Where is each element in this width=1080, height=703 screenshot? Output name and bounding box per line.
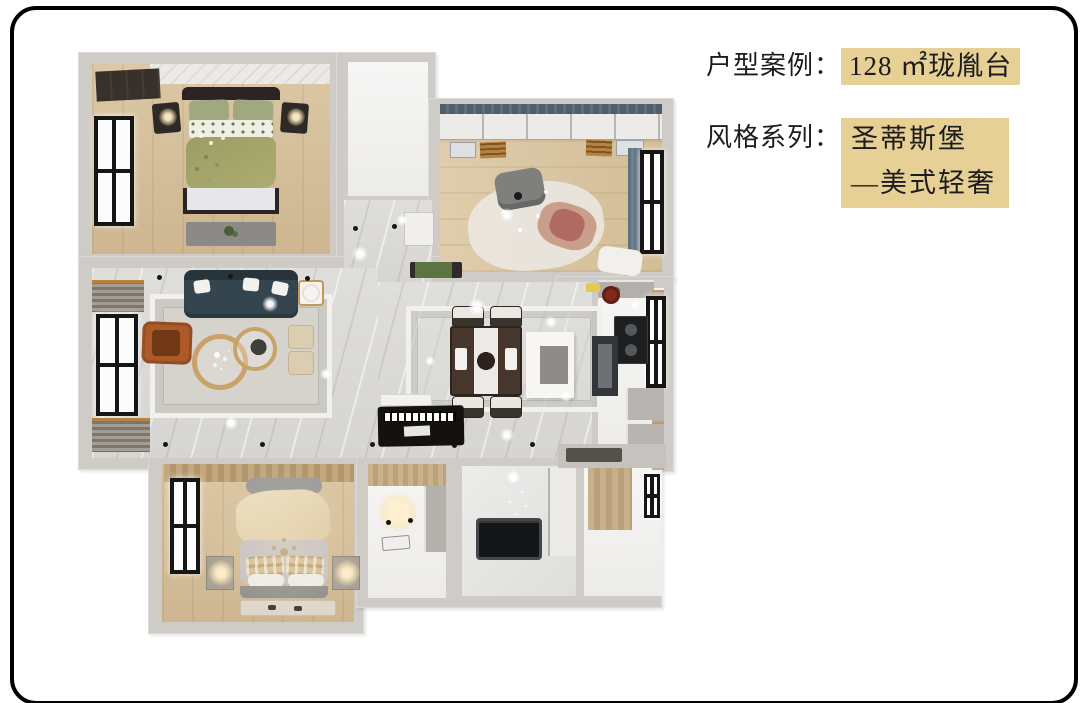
window-bay-shutter-top (92, 280, 144, 312)
curtain-pelmet-top (440, 104, 662, 114)
chandelier (514, 192, 522, 200)
ceiling-glow (506, 470, 520, 484)
ottoman-stool (288, 325, 314, 349)
window-living (96, 314, 138, 416)
place-setting (455, 348, 467, 370)
window-kitchen (646, 296, 666, 388)
ceiling-lamp-glow (378, 492, 418, 532)
island-gray-panel (540, 346, 568, 384)
sink-basin (566, 448, 622, 462)
sofa-pillow (193, 279, 211, 294)
lamp-glow (159, 108, 177, 126)
wardrobe-dark (95, 68, 160, 101)
bed-plant-branch (198, 132, 204, 138)
countertop-item-yellow (586, 283, 600, 292)
balcony-wood-panel (588, 468, 632, 530)
wardrobe-cabinets (440, 114, 662, 140)
ceiling-spotlights (163, 442, 168, 447)
bathtub-dark (476, 518, 542, 560)
potted-plant (602, 286, 620, 304)
kitchen-tall-unit-front (598, 344, 612, 388)
closet-wood-wall (368, 464, 446, 486)
ceiling-glow (320, 368, 332, 380)
place-setting (505, 348, 517, 370)
ceiling-glow (262, 296, 278, 312)
bath-counter (548, 468, 576, 556)
info-line2-value-highlight: 圣蒂斯堡 —美式轻奢 (841, 118, 1009, 208)
ceiling-spotlights (353, 226, 358, 231)
ceiling-glow (352, 246, 368, 262)
bed-headboard (182, 87, 280, 100)
ceiling-glow (500, 208, 514, 222)
ceiling-spotlights (386, 520, 391, 525)
coffee-table-ring-small (233, 327, 277, 371)
glass-cabinet (450, 142, 476, 158)
style-series-subtitle: —美式轻奢 (851, 166, 999, 200)
ceiling-glow (224, 416, 238, 430)
stove-cooktop (614, 316, 648, 364)
ceiling-glow (630, 300, 640, 310)
room-warm-glow (205, 470, 365, 620)
armchair-seat (152, 330, 180, 356)
info-line-2: 风格系列： 圣蒂斯堡 —美式轻奢 (706, 118, 1009, 208)
window-bedroom-top-right (640, 150, 664, 254)
table-blossom-decor (214, 352, 220, 358)
bed-duvet (186, 137, 276, 189)
wood-shelf-ladder (480, 142, 507, 159)
side-table (298, 280, 324, 306)
ceiling-glow (396, 214, 408, 226)
shoe-cabinet-plants (410, 262, 462, 278)
info-line1-label: 户型案例： (706, 48, 841, 84)
lamp-glow (287, 108, 305, 126)
ottoman-stool (288, 351, 314, 375)
window-balcony (644, 474, 660, 518)
style-series-name: 圣蒂斯堡 (851, 122, 999, 156)
wood-shelf-ladder (586, 140, 613, 157)
piano-sheet-music (404, 425, 430, 436)
window-bedroom-top-left (94, 116, 134, 226)
bed-mattress (183, 188, 279, 214)
ceiling-glow (560, 390, 572, 402)
ceiling-glow (545, 316, 557, 328)
ceiling-plank-strip (150, 64, 330, 84)
kitchen-base-cabinet (626, 388, 664, 420)
ceiling-glow (425, 356, 435, 366)
piano-keys (384, 412, 456, 422)
ceiling-glow (468, 298, 486, 316)
window-bay-shutter-bottom (92, 418, 150, 452)
dining-chair (490, 306, 522, 328)
ceiling-spotlights (157, 275, 162, 280)
info-line2-label: 风格系列： (706, 118, 841, 156)
ceiling-glow (500, 428, 514, 442)
info-line1-value-highlight: 128 ㎡珑胤台 (841, 48, 1020, 85)
rug-plant (224, 226, 234, 236)
page: 户型案例： 128 ㎡珑胤台 风格系列： 圣蒂斯堡 —美式轻奢 (0, 0, 1080, 703)
sofa-pillow (242, 277, 259, 291)
dining-chair (490, 396, 522, 418)
foyer-cabinet (404, 212, 434, 246)
info-line-1: 户型案例： 128 ㎡珑胤台 (706, 48, 1020, 85)
floor-closet-top (348, 62, 428, 196)
window-master-bedroom (170, 478, 200, 574)
closet-cabinet (424, 486, 446, 552)
floor-tray-book (381, 535, 410, 551)
wall-shelf-white (380, 394, 432, 406)
